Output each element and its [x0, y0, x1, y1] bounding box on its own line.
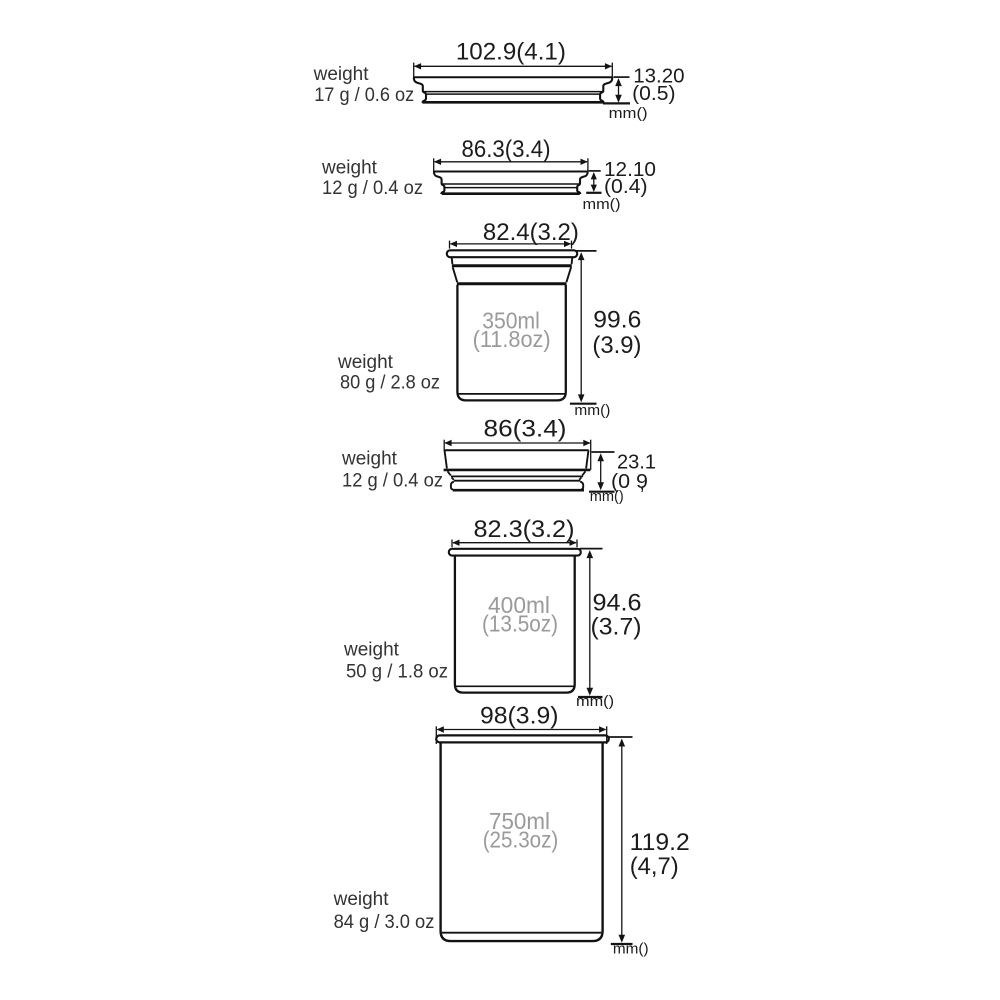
svg-text:99.6: 99.6	[593, 307, 641, 334]
svg-text:12 g / 0.4 oz: 12 g / 0.4 oz	[342, 471, 443, 492]
svg-text:mm(): mm()	[574, 402, 610, 419]
svg-text:98(3.9): 98(3.9)	[480, 702, 559, 729]
svg-text:mm(): mm()	[576, 693, 614, 710]
svg-text:17 g / 0.6 oz: 17 g / 0.6 oz	[314, 85, 414, 106]
svg-text:weight: weight	[321, 158, 378, 179]
svg-text:102.9(4.1): 102.9(4.1)	[456, 38, 566, 65]
svg-text:,: ,	[640, 474, 645, 495]
svg-text:(4,7): (4,7)	[630, 853, 679, 880]
svg-text:80 g / 2.8 oz: 80 g / 2.8 oz	[340, 373, 440, 394]
svg-text:weight: weight	[341, 449, 398, 470]
svg-text:82.3(3.2): 82.3(3.2)	[474, 516, 575, 543]
svg-text:weight: weight	[337, 352, 394, 373]
svg-text:mm(): mm()	[613, 941, 649, 958]
svg-text:86(3.4): 86(3.4)	[484, 416, 567, 443]
svg-text:(11.8oz): (11.8oz)	[473, 326, 551, 352]
svg-text:mm(): mm()	[609, 105, 648, 122]
svg-text:(0.4): (0.4)	[604, 175, 648, 198]
svg-text:(25.3oz): (25.3oz)	[483, 827, 559, 853]
svg-text:(0.5): (0.5)	[632, 82, 675, 105]
svg-text:(3.9): (3.9)	[592, 332, 641, 359]
svg-text:mm(): mm()	[590, 488, 624, 505]
svg-text:86.3(3.4): 86.3(3.4)	[462, 136, 551, 163]
svg-text:mm(): mm()	[583, 196, 621, 213]
svg-text:weight: weight	[343, 640, 400, 661]
svg-text:50 g / 1.8 oz: 50 g / 1.8 oz	[346, 662, 448, 683]
svg-text:94.6: 94.6	[593, 590, 642, 617]
svg-text:weight: weight	[313, 64, 370, 85]
svg-text:12 g / 0.4 oz: 12 g / 0.4 oz	[322, 178, 423, 199]
svg-text:119.2: 119.2	[630, 829, 690, 856]
svg-text:84 g / 3.0 oz: 84 g / 3.0 oz	[334, 912, 435, 933]
svg-text:(13.5oz): (13.5oz)	[482, 611, 558, 637]
svg-text:weight: weight	[333, 889, 390, 910]
svg-text:(3.7): (3.7)	[591, 614, 642, 641]
